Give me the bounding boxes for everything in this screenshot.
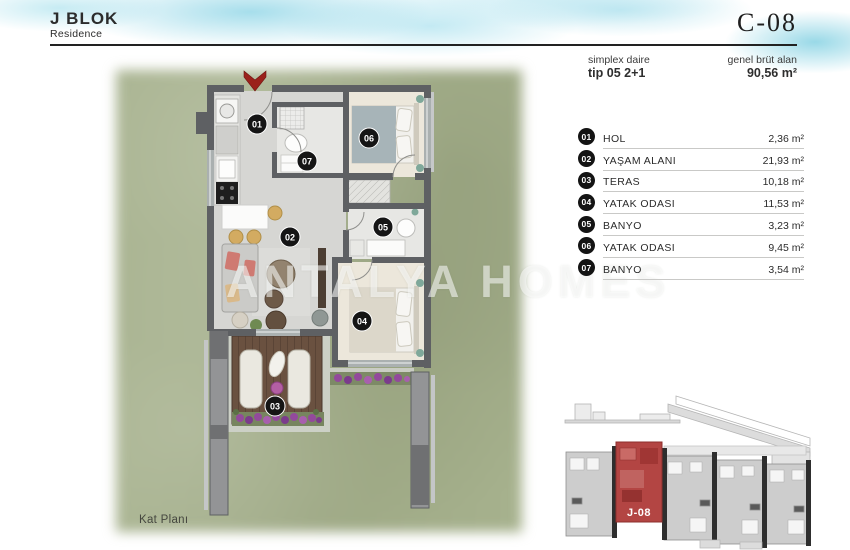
room-name: YATAK ODASI [603, 242, 675, 254]
badge-06: 06 [364, 134, 374, 144]
room-name: BANYO [603, 264, 642, 276]
room-number-badge: 04 [578, 194, 595, 211]
room-legend: 01 HOL2,36 m² 02 YAŞAM ALANI21,93 m² 03 … [578, 126, 804, 279]
room-area: 9,45 m² [768, 242, 804, 254]
stove [216, 182, 238, 204]
room-area: 11,53 m² [763, 198, 804, 210]
tv-unit [318, 248, 326, 308]
room-name: TERAS [603, 176, 640, 188]
room-terrace [226, 332, 330, 432]
sofa [222, 244, 258, 312]
legend-row: 04 YATAK ODASI11,53 m² [578, 191, 804, 213]
legend-row: 06 YATAK ODASI9,45 m² [578, 235, 804, 257]
round-table [312, 310, 328, 326]
block-title: J BLOK [50, 9, 118, 29]
room-number-badge: 05 [578, 216, 595, 233]
room-name: YATAK ODASI [603, 198, 675, 210]
gross-area-value: 90,56 m² [747, 66, 797, 80]
room-area: 10,18 m² [763, 176, 804, 188]
room-number-badge: 07 [578, 259, 595, 276]
key-plan: J-08 [560, 390, 815, 550]
keyplan-unit-label: J-08 [627, 507, 651, 519]
unit-code: C-08 [737, 8, 797, 38]
legend-row: 05 BANYO3,23 m² [578, 213, 804, 235]
type-label: simplex daire [588, 54, 650, 66]
badge-03: 03 [270, 402, 280, 412]
type-value: tip 05 2+1 [588, 66, 645, 80]
header-divider [50, 44, 797, 46]
pouf [232, 312, 248, 328]
kitchen [214, 95, 240, 205]
legend-row: 02 YAŞAM ALANI21,93 m² [578, 148, 804, 170]
floor-plan-sheet: J BLOK Residence C-08 simplex daire tip … [0, 0, 850, 550]
coffee-table [267, 260, 295, 288]
room-area: 21,93 m² [763, 155, 804, 167]
badge-01: 01 [252, 120, 262, 130]
room-name: BANYO [603, 220, 642, 232]
legend-row: 03 TERAS10,18 m² [578, 170, 804, 192]
badge-07: 07 [302, 157, 312, 167]
armchair [266, 311, 286, 331]
room-name: HOL [603, 133, 626, 145]
room-name: YAŞAM ALANI [603, 155, 676, 167]
room-number-badge: 02 [578, 150, 595, 167]
flower-bed [330, 368, 414, 385]
room-number-badge: 06 [578, 237, 595, 254]
room-area: 2,36 m² [768, 133, 804, 145]
floor-plan: 01 02 03 04 05 06 07 [115, 55, 555, 550]
legend-row: 07 BANYO3,54 m² [578, 257, 804, 279]
plan-caption: Kat Planı [139, 514, 188, 526]
closet [348, 180, 390, 203]
entrance-arrow-icon [244, 71, 266, 91]
side-table [265, 290, 283, 308]
badge-05: 05 [378, 223, 388, 233]
room-number-badge: 03 [578, 172, 595, 189]
room-number-badge: 01 [578, 128, 595, 145]
keyplan-units [566, 452, 810, 544]
keyplan-highlighted-unit: J-08 [616, 442, 662, 522]
badge-04: 04 [357, 317, 367, 327]
room-area: 3,54 m² [768, 264, 804, 276]
lounger [240, 350, 262, 408]
badge-02: 02 [285, 233, 295, 243]
block-subtitle: Residence [50, 28, 102, 40]
legend-row: 01 HOL2,36 m² [578, 126, 804, 148]
room-area: 3,23 m² [768, 220, 804, 232]
gross-area-label: genel brüt alan [728, 54, 797, 66]
lounger [288, 350, 310, 408]
